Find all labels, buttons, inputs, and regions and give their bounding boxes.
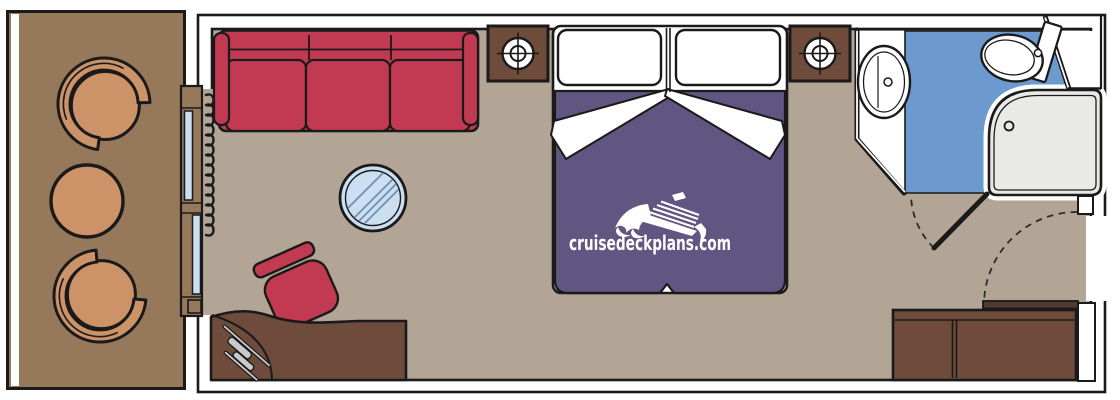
sofa-cushion-middle <box>306 60 390 131</box>
entry-door-jamb-bottom-wall <box>1078 303 1095 381</box>
balcony-door-glass-lower <box>193 215 201 294</box>
entry-door-panel <box>983 301 1078 309</box>
floorplan-canvas: cruisedeckplans.com <box>0 0 1120 400</box>
watermark-text: cruisedeckplans.com <box>569 231 731 255</box>
patio-table <box>51 165 123 237</box>
sink <box>858 46 910 118</box>
balcony-edge-strip <box>11 14 19 386</box>
sofa <box>214 31 478 132</box>
balcony-door-glass-upper <box>185 111 193 200</box>
toilet-flush-button <box>1034 49 1041 56</box>
sink-drain <box>884 78 892 86</box>
entry-door-jamb-top <box>1078 196 1093 214</box>
balcony <box>8 12 185 389</box>
pillow-left <box>558 30 661 85</box>
sofa-armrest-left <box>214 33 229 125</box>
sofa-cushion-left <box>226 60 306 131</box>
bed: cruisedeckplans.com <box>551 26 787 293</box>
entry-opening <box>1086 216 1112 301</box>
sofa-cushion-right <box>390 60 470 131</box>
curtain-icon <box>206 94 214 235</box>
desk <box>210 311 406 381</box>
cabin-floorplan: cruisedeckplans.com <box>0 0 1120 400</box>
sofa-armrest-right <box>463 33 478 125</box>
nightstand-left <box>488 26 548 81</box>
bathroom <box>856 16 1101 195</box>
balcony-door-step <box>188 300 201 313</box>
wardrobe-cabinet <box>893 310 1076 380</box>
nightstand-right <box>790 26 850 81</box>
pillow-right <box>676 30 780 85</box>
